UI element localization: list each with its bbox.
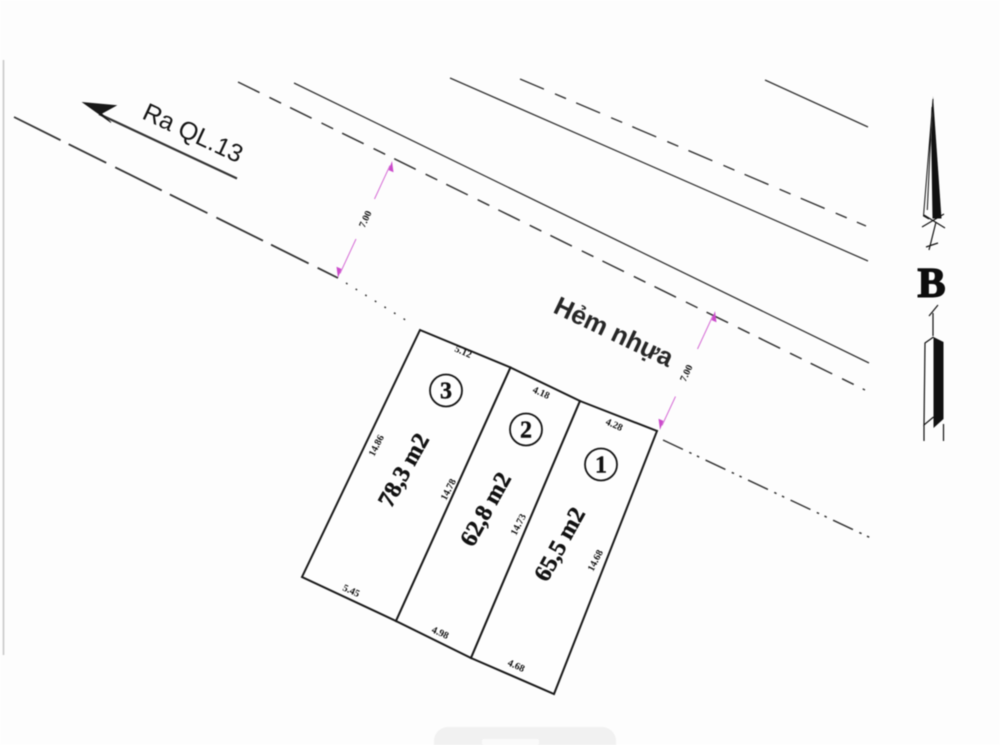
svg-text:1: 1 [595, 453, 607, 479]
svg-text:3: 3 [440, 379, 452, 405]
svg-text:2: 2 [520, 418, 532, 444]
svg-text:B: B [917, 261, 945, 307]
